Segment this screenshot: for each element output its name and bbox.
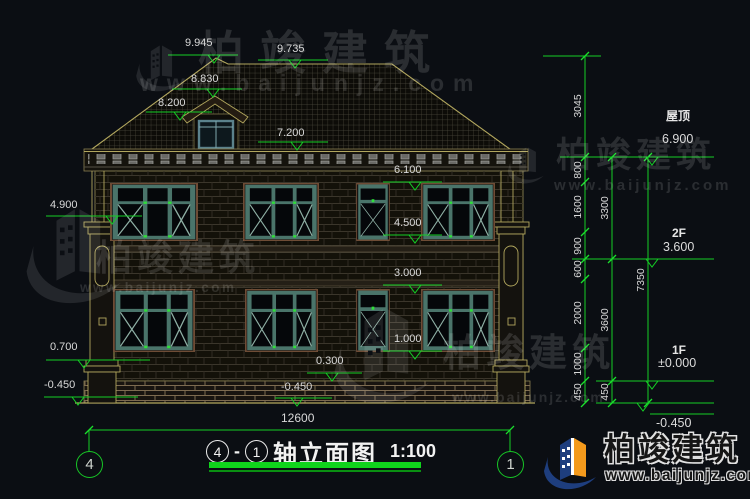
watermark-site: www.baijunjz.com xyxy=(554,178,731,193)
dim-seg: 800 xyxy=(573,161,584,179)
dim-seg: 3300 xyxy=(600,196,611,219)
company-logo-brand: 柏竣建筑 xyxy=(604,434,740,465)
story-level-1f: ±0.000 xyxy=(658,357,696,370)
dim-seg: 600 xyxy=(573,260,584,278)
level-4900-left: 4.900 xyxy=(50,200,78,211)
company-logo-site: www.baijunjz.com xyxy=(605,468,750,484)
dim-seg: 450 xyxy=(573,383,584,401)
watermark-brand: 柏竣建筑 xyxy=(443,335,615,373)
dim-seg: 1600 xyxy=(573,195,584,218)
watermark-logo-icon xyxy=(330,300,445,415)
dim-seg: 1000 xyxy=(573,352,584,375)
dim-total-width: 12600 xyxy=(281,412,314,424)
level-9735: 9.735 xyxy=(277,44,305,55)
level-1000: 1.000 xyxy=(394,334,422,345)
title-axis-end: 1 xyxy=(245,440,268,463)
title-underline xyxy=(209,462,421,468)
level-neg450-bottom: -0.450 xyxy=(281,382,312,393)
level-neg450-left: -0.450 xyxy=(44,380,75,391)
level-7200: 7.200 xyxy=(277,128,305,139)
watermark-site: www.baijunjz.com xyxy=(80,281,237,295)
story-label-2f: 2F xyxy=(672,227,686,239)
dim-seg: 900 xyxy=(573,237,584,255)
dim-total-height: 7350 xyxy=(636,268,647,291)
watermark-logo-icon xyxy=(506,138,550,194)
level-4500: 4.500 xyxy=(394,218,422,229)
dim-seg: 450 xyxy=(600,383,611,401)
story-level-roof: 6.900 xyxy=(662,133,693,146)
story-level-ground: -0.450 xyxy=(656,417,691,430)
title-underline-thin xyxy=(209,470,421,472)
watermark-brand: 柏竣建筑 xyxy=(96,240,260,276)
dim-seg: 2000 xyxy=(573,301,584,324)
axis-bubble-4: 4 xyxy=(76,451,103,478)
windows-2f xyxy=(111,184,494,241)
level-6100: 6.100 xyxy=(394,165,422,176)
story-label-roof: 屋顶 xyxy=(666,110,690,122)
level-9945: 9.945 xyxy=(185,38,213,49)
title-axis-start: 4 xyxy=(206,440,229,463)
title-scale: 1:100 xyxy=(390,441,436,462)
level-0700-left: 0.700 xyxy=(50,342,78,353)
level-8200: 8.200 xyxy=(158,98,186,109)
level-0300: 0.300 xyxy=(316,356,344,367)
level-8830: 8.830 xyxy=(191,74,219,85)
level-3000: 3.000 xyxy=(394,268,422,279)
dim-roof-rise: 3045 xyxy=(573,94,584,117)
cornice xyxy=(84,149,528,171)
title-separator: - xyxy=(234,441,240,462)
story-level-2f: 3.600 xyxy=(663,241,694,254)
axis-bubble-1: 1 xyxy=(497,451,524,478)
story-label-1f: 1F xyxy=(672,344,686,356)
dim-seg: 3600 xyxy=(600,308,611,331)
cad-elevation-canvas: 柏竣建筑 www.baijunjz.com 柏竣建筑 www.baijunjz.… xyxy=(0,0,750,499)
company-logo-icon xyxy=(541,431,605,495)
